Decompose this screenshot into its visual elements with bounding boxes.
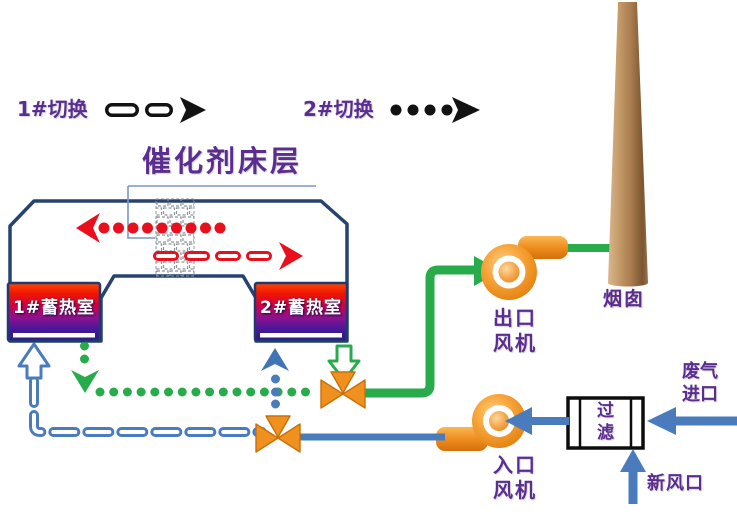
catalyst-bed bbox=[156, 199, 194, 276]
legend-dotted-arrow-icon bbox=[391, 97, 481, 123]
waste-gas-label-line1: 废气 bbox=[672, 361, 728, 384]
outlet-fan-label-line2: 风机 bbox=[477, 331, 553, 356]
filter-label-line1: 过 bbox=[568, 400, 643, 422]
chimney-label: 烟囱 bbox=[603, 288, 645, 312]
filter-label-line2: 滤 bbox=[568, 422, 643, 444]
inlet-fan-label: 入口 风机 bbox=[477, 453, 553, 503]
waste-gas-label: 废气 进口 bbox=[672, 361, 728, 406]
legend-switch2-label: 2#切换 bbox=[303, 97, 374, 122]
diagram-canvas bbox=[0, 0, 737, 527]
rto-process-diagram: 1#切换 2#切换 催化剂床层 1#蓄热室 2#蓄热室 出口 风机 入口 风机 … bbox=[0, 0, 737, 527]
outlet-pipe-green bbox=[352, 270, 477, 393]
three-way-valve-lower-icon bbox=[256, 416, 300, 452]
catalyst-bed-title: 催化剂床层 bbox=[142, 143, 302, 179]
outlet-fan-label-line1: 出口 bbox=[477, 306, 553, 331]
outlet-fan-label: 出口 风机 bbox=[477, 306, 553, 356]
legend-dashed-arrow-icon bbox=[112, 97, 206, 123]
inlet-fan-label-line2: 风机 bbox=[477, 478, 553, 503]
chimney-icon bbox=[608, 2, 648, 287]
waste-gas-arrow-icon bbox=[647, 407, 737, 435]
regenerator-2-label: 2#蓄热室 bbox=[255, 283, 347, 335]
regenerator-1-label: 1#蓄热室 bbox=[8, 283, 100, 335]
fresh-air-label: 新风口 bbox=[647, 473, 704, 496]
fresh-air-arrow-icon bbox=[620, 449, 646, 504]
legend-switch1-label: 1#切换 bbox=[17, 97, 88, 122]
waste-gas-label-line2: 进口 bbox=[672, 384, 728, 407]
outlet-fan-icon bbox=[481, 236, 568, 300]
inlet-fan-label-line1: 入口 bbox=[477, 453, 553, 478]
filter-label: 过 滤 bbox=[568, 400, 643, 444]
three-way-valve-upper-icon bbox=[321, 372, 365, 408]
mode2-inlet-path-icon bbox=[261, 348, 289, 409]
